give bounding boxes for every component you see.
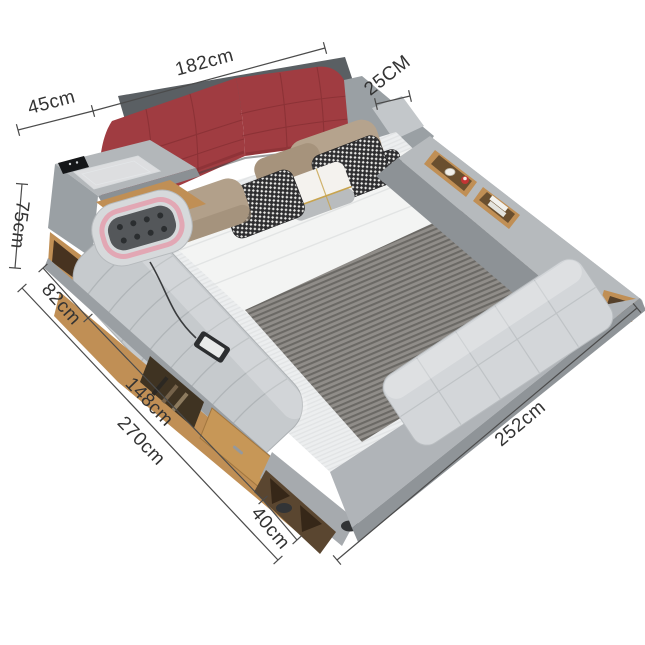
dim-25cm-label: 25CM (360, 51, 414, 100)
bed-illustration: 45cm 182cm 25CM 75cm 82cm 148 (0, 0, 645, 645)
console-gadget-dot-1 (69, 163, 71, 165)
dim-75cm-label: 75cm (6, 199, 33, 250)
cubby-cup (445, 168, 455, 175)
dim-75cm: 75cm (6, 184, 33, 269)
bed-foot-left (276, 503, 292, 513)
dim-45cm-label: 45cm (25, 86, 77, 119)
product-image: 45cm 182cm 25CM 75cm 82cm 148 (0, 0, 645, 645)
console-gadget-dot-2 (76, 161, 78, 163)
dim-45cm: 45cm (16, 86, 94, 136)
cubby-red-jar-lid (463, 177, 467, 181)
